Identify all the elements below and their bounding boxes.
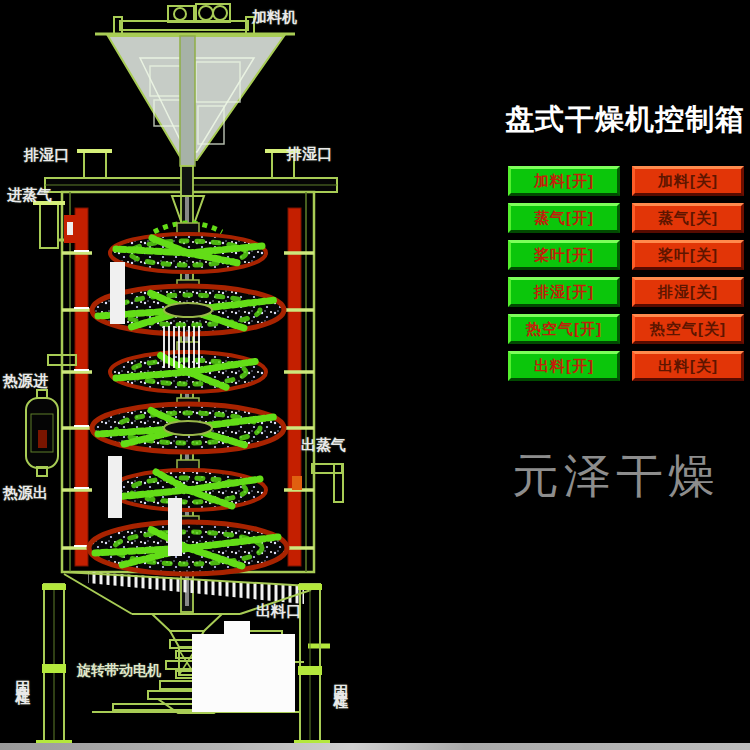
hot-air-off-button[interactable]: 热空气[关] [632,314,744,344]
screenshot-stage: 加料机 排湿口 排湿口 进蒸气 热源进 热源出 出蒸气 出料口 旋转带动电机 固… [0,0,750,750]
steam-out-label: 出蒸气 [301,436,346,455]
feeder-label: 加料机 [252,8,297,27]
discharge-label: 出料口 [256,602,301,621]
steam-jacket-right [288,208,301,566]
support-column-left [36,584,72,747]
discharge-off-button[interactable]: 出料[关] [632,351,744,381]
vent-right-label: 排湿口 [287,145,332,164]
vent-off-button[interactable]: 排湿[关] [632,277,744,307]
vent-left-label: 排湿口 [24,146,69,165]
hot-air-on-button[interactable]: 热空气[开] [508,314,620,344]
heat-out-label: 热源出 [3,484,48,503]
steam-off-button[interactable]: 蒸气[关] [632,203,744,233]
fixed-column-right-label: 固定柱 [331,672,350,687]
watermark: 元泽干燥 [512,445,720,508]
motor-label: 旋转带动电机 [77,662,161,680]
steam-jacket-left [75,208,88,566]
discharge-on-button[interactable]: 出料[开] [508,351,620,381]
heat-in-label: 热源进 [3,372,48,391]
paddle-off-button[interactable]: 桨叶[关] [632,240,744,270]
motor-housing-white-box [192,621,295,712]
steam-in-label: 进蒸气 [7,186,52,205]
feed-on-button[interactable]: 加料[开] [508,166,620,196]
steam-on-button[interactable]: 蒸气[开] [508,203,620,233]
floor-strip [0,743,750,750]
panel-title: 盘式干燥机控制箱 [500,100,750,140]
paddle-on-button[interactable]: 桨叶[开] [508,240,620,270]
fixed-column-left-label: 固定柱 [13,668,32,683]
vent-on-button[interactable]: 排湿[开] [508,277,620,307]
feed-off-button[interactable]: 加料[关] [632,166,744,196]
feed-hopper [108,36,284,166]
